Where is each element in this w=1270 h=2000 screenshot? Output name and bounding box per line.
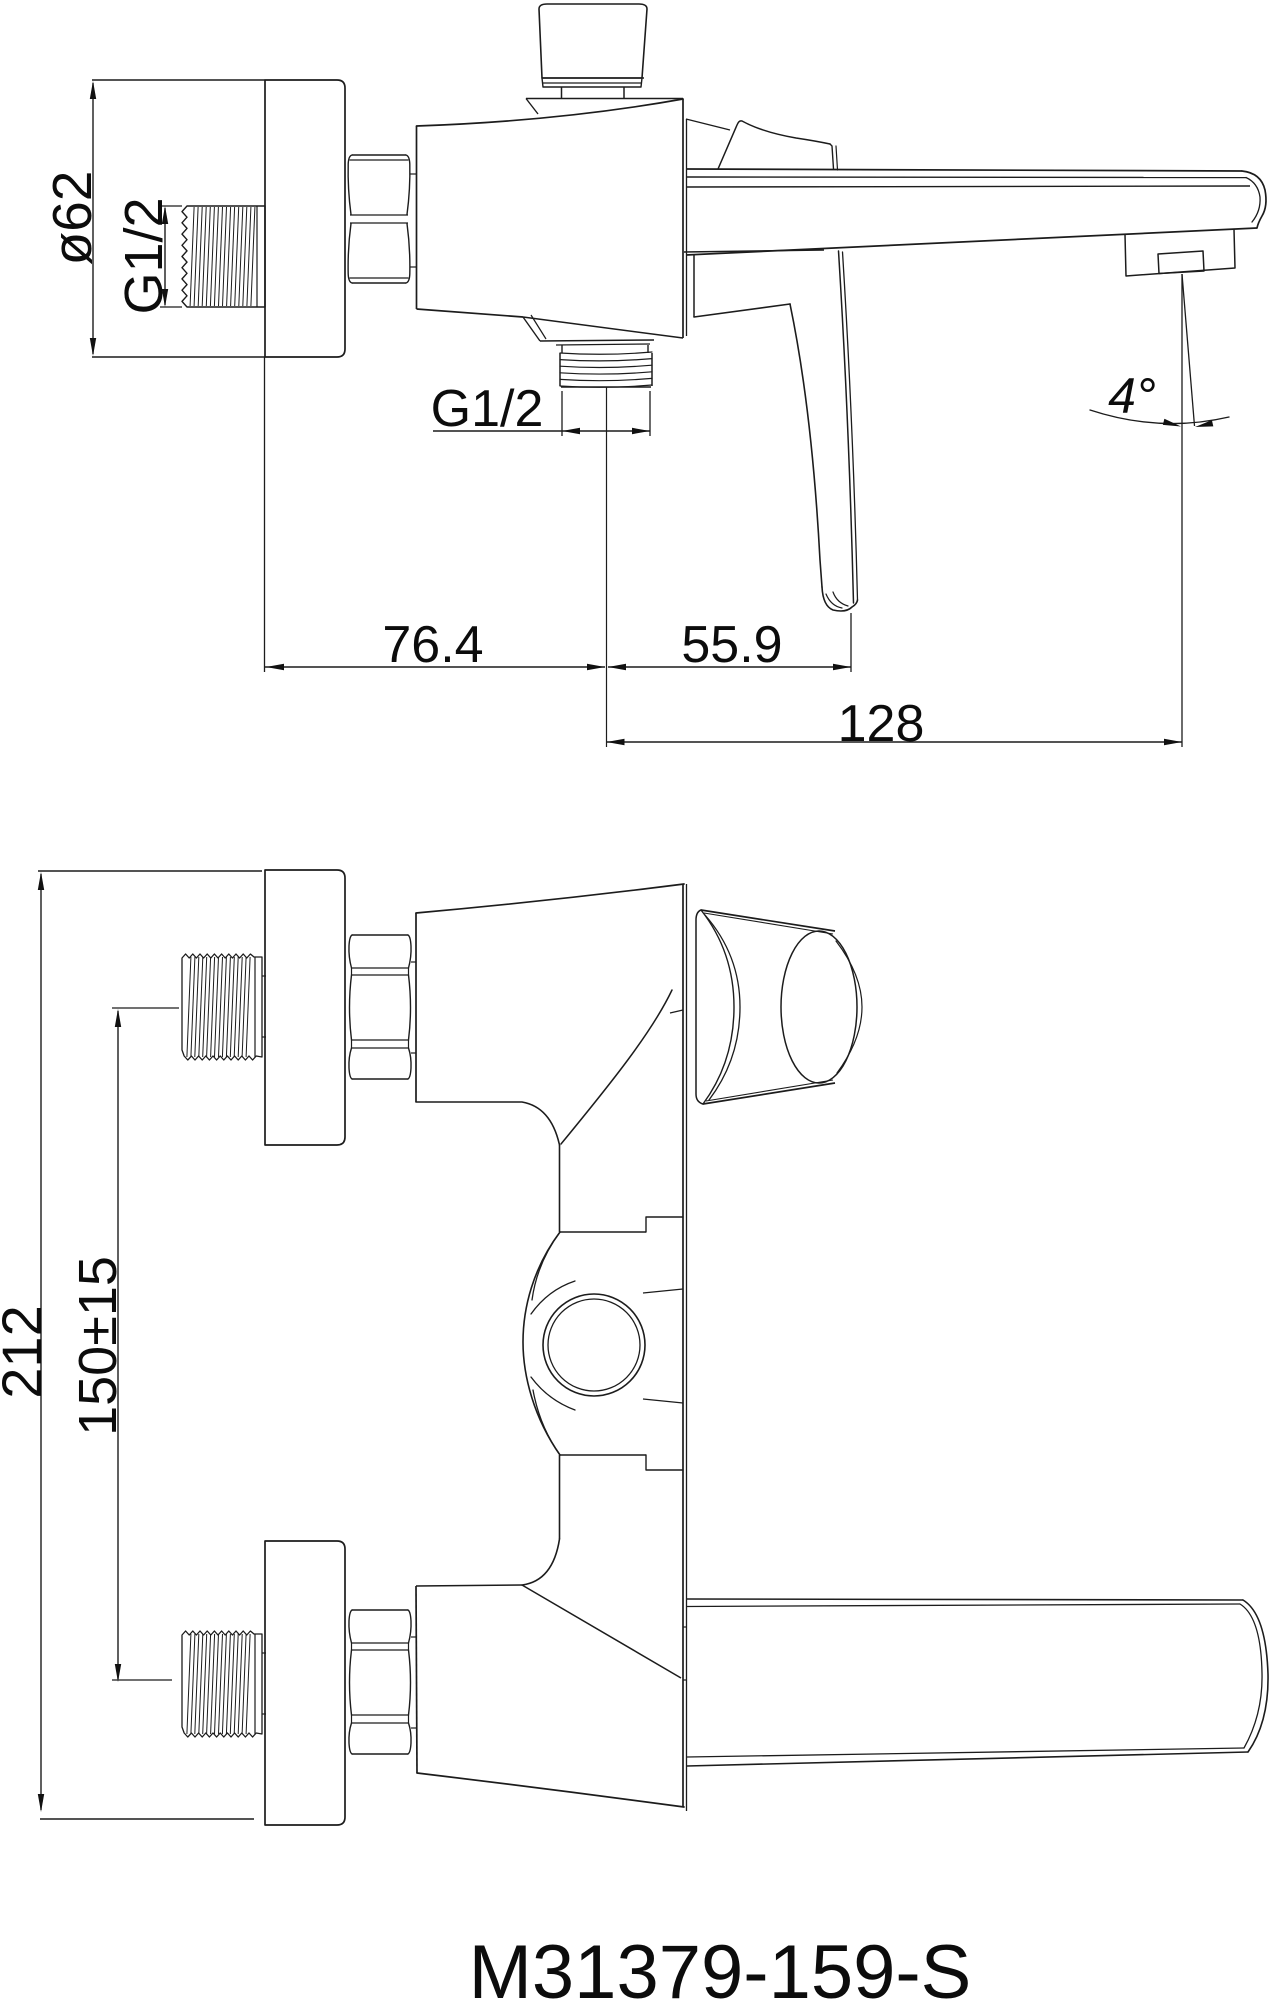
svg-text:212: 212 [0, 1305, 53, 1398]
svg-text:ø62: ø62 [41, 171, 103, 266]
svg-text:G1/2: G1/2 [431, 380, 544, 438]
svg-text:76.4: 76.4 [382, 616, 483, 674]
svg-text:4°: 4° [1108, 368, 1156, 424]
svg-text:M31379-159-S: M31379-159-S [469, 1930, 972, 2000]
svg-text:55.9: 55.9 [681, 616, 782, 674]
svg-text:128: 128 [838, 695, 925, 753]
svg-text:G1/2: G1/2 [114, 197, 174, 314]
svg-text:150±15: 150±15 [68, 1256, 128, 1436]
